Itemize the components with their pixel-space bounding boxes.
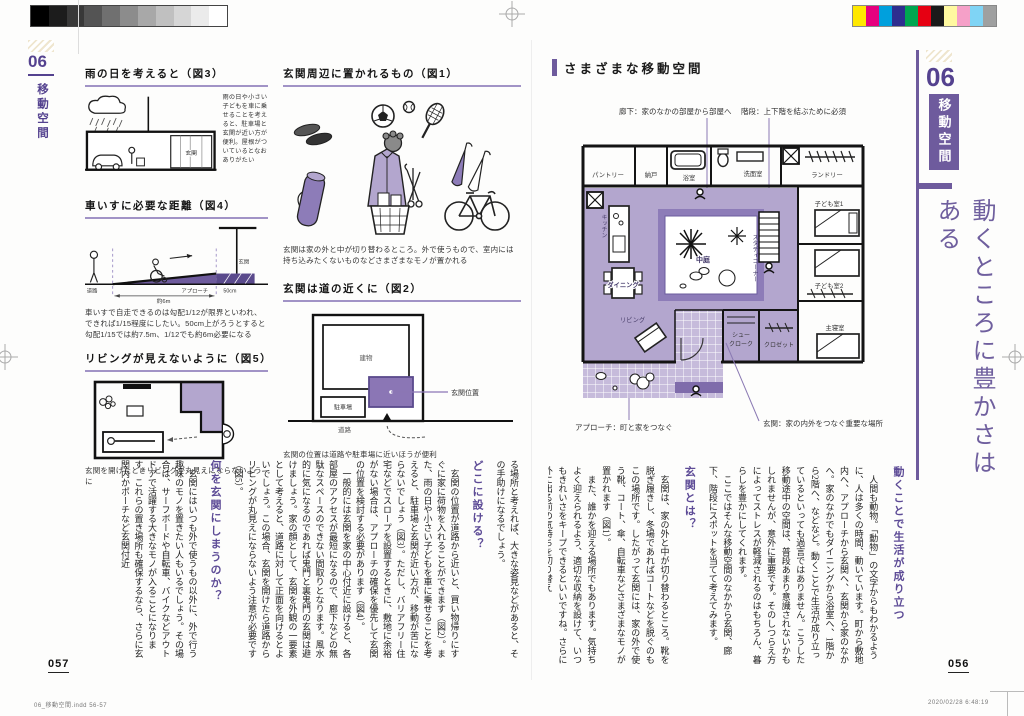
road-label: 道路 [87,286,98,294]
master-label: 主寝室 [826,323,845,332]
kids2-label: 子ども室2 [815,281,844,290]
calibration-swatch [138,6,156,26]
body-paragraph: 一般的には玄関を家の中心付近に設けると、各部屋のアクセスが最短になるので、廊下な… [231,460,353,662]
calibration-swatch [905,6,918,26]
left-column: 雨の日を考えると（図3） [85,66,268,497]
middle-column: 玄関周辺に置かれるもの（図1） [283,66,521,471]
pantry-label: パントリー [592,171,624,179]
figure-site-plan: 玄関は道の近くに（図2） 建物 玄関位置 駐車場 道路 玄関の位置は道路や駐車場… [283,281,521,461]
courtyard-label: 中庭 [696,255,711,264]
chapter-label: 移動空間 [935,98,954,166]
grayscale-calibration-bar [30,5,228,27]
racket-icon [415,101,447,142]
floor-plan: 廊下：家のなかの部屋から部屋へ 階段：上下階を結ぶために必須 中庭 スタディコー… [563,96,955,444]
chapter-tab-right: 06 移動空間 動くところに豊かさはある [916,50,980,480]
figure-caption: 雨の日や小さい子どもを車に乗せることを考えると、駐車場と玄関が近い方が便利。屋根… [223,94,268,166]
calibration-swatch [983,6,996,26]
body-paragraph: 玄関は、家の外と中が切り替わるところ。靴を脱ぎ履きし、冬場であればコートなどを脱… [599,466,672,668]
calibration-swatch [49,6,67,26]
shoecloak-label2: クローク [729,341,753,348]
figure-caption: 玄関は家の外と中が切り替わるところ。外で使うもので、室内には持ち込みたくないもの… [283,245,521,267]
chapter-headline: 動くところに豊かさはある [930,198,1000,498]
footer-slug-left: 06_移動空間.indd 56-57 [34,700,107,709]
closet-hangers-icon [807,289,853,298]
entrance-callout: 玄関：家の内外をつなぐ重要な場所 [763,418,883,428]
study-label: スタディコーナー [751,234,758,282]
calibration-swatch [853,6,866,26]
footer-slug-right: 2020/02/28 6:48:19 [928,700,989,706]
figure-title: 雨の日を考えると（図3） [85,66,268,87]
section-title: さまざまな移動空間 [564,58,704,77]
figure-title: 玄関周辺に置かれるもの（図1） [283,66,521,87]
calibration-swatch [102,6,120,26]
calibration-swatch [67,6,85,26]
figure-wheelchair: 車いすに必要な距離（図4） 玄関 [85,198,268,341]
calibration-swatch [892,6,905,26]
calibration-swatch [209,6,227,26]
approach-callout: アプローチ：町と家をつなぐ [575,422,673,432]
body-paragraph: 玄関にはいつも外で使うもの以外に、外で行う趣味のモノを置きたい人もいるでしょう。… [118,460,199,662]
storage-label: 納戸 [645,170,658,179]
laundry-hangers-icon [805,151,855,162]
calibration-swatch [957,6,970,26]
figure-title: 車いすに必要な距離（図4） [85,198,268,219]
body-paragraph: また、誰かを迎える場所でもあります。気持ちよく迎えられるよう、適切な収納を設けて… [548,466,599,668]
closet-label: クロゼット [764,341,794,349]
plant-icon [100,396,116,409]
divider-dash [916,183,952,189]
calibration-swatch [191,6,209,26]
site-plan-diagram: 建物 玄関位置 駐車場 道路 [283,309,521,447]
building-label: 建物 [360,353,374,362]
parking-label: 駐車場 [334,403,352,411]
tree-icon [676,229,706,259]
body-heading: 玄関とは？ [671,466,705,668]
figure-caption: 車いすで自走できるのは勾配1/12が限界といわれ、できれば1/15程度にしたい。… [85,308,268,341]
washroom-label: 洗面室 [744,169,763,178]
entrance-items-illustration [283,94,521,242]
right-page-body-text: 動くことで生活が成り立つ人間も動物。「動物」の文字からもわかるように、人は多くの… [548,466,914,668]
figure-title: リビングが見えないように（図5） [85,351,268,372]
hall-callout: 廊下：家のなかの部屋から部屋へ [619,106,732,116]
registration-mark [499,1,525,27]
body-paragraph: る場所と考えれば、大きな姿見などがあると、その手助けになるでしょう。 [493,460,520,662]
bath-label: 浴室 [683,173,696,182]
section-header: さまざまな移動空間 [552,58,704,77]
genkan-label: 玄関 [185,149,197,157]
calibration-swatch [174,6,192,26]
dining-label: ダイニング [607,280,639,289]
step-label: 50cm [223,288,237,294]
body-heading: どこに設ける？ [461,460,494,662]
page-number-right: 056 [948,658,969,673]
umbrella-icon [468,149,491,193]
header-accent-bar [552,59,557,76]
living-label: リビング [620,315,646,324]
calibration-swatch [879,6,892,26]
figure-entrance-items: 玄関周辺に置かれるもの（図1） [283,66,521,267]
rain-diagram: 玄関 [85,94,217,188]
laundry-label: ランドリー [811,171,842,179]
calibration-swatch [156,6,174,26]
genkan-label: 玄関 [239,258,250,266]
registration-mark [1002,344,1024,370]
chapter-label-box: 移動空間 [929,94,959,170]
calibration-swatch [866,6,879,26]
calibration-swatch [918,6,931,26]
crop-mark [78,0,79,54]
kids1-label: 子ども室1 [815,199,844,208]
calibration-swatch [120,6,138,26]
kitchen-label: キッチン [600,214,607,238]
left-page-body-text: る場所と考えれば、大きな姿見などがあると、その手助けになるでしょう。どこに設ける… [60,460,520,662]
crop-mark [1007,691,1008,716]
page-seam [531,40,532,680]
bicycle-icon [445,192,509,230]
stairs-callout: 階段：上下階を結ぶために必須 [741,106,846,116]
body-heading: 動くことで生活が成り立つ [880,466,914,668]
body-paragraph: ここではそんな移動空間のなかから玄関、廊下、階段にスポットを当てて考えてみます。 [705,466,734,668]
body-paragraph: 人間も動物。「動物」の文字からもわかるように、人は多くの時間、動いています。町か… [734,466,880,668]
umbrella-icon [451,141,472,187]
calibration-swatch [970,6,983,26]
shoecloak-label: シュー [732,333,750,339]
body-heading: 何を玄関にしまうのか？ [199,460,232,662]
approach-label: アプローチ [181,287,208,294]
calibration-swatch [84,6,102,26]
page-number-left: 057 [48,658,69,673]
chapter-number: 06 [28,52,54,76]
stroller-icon [405,164,422,207]
golf-bag-icon [293,170,327,228]
chapter-label: 移動空間 [34,83,50,141]
chapter-tab-left: 06 移動空間 [28,40,64,141]
figure-title: 玄関は道の近くに（図2） [283,281,521,302]
entrance-position-label: 玄関位置 [451,388,479,397]
calibration-swatch [944,6,957,26]
figure-caption: 玄関の位置は道路や駐車場に近いほうが便利 [283,450,521,461]
calibration-swatch [931,6,944,26]
hatch-decoration [926,50,952,62]
figure-rain: 雨の日を考えると（図3） [85,66,268,188]
road-label: 道路 [338,425,352,434]
registration-mark [0,344,18,370]
chapter-number: 06 [926,64,980,90]
hatch-decoration [28,40,54,52]
color-calibration-bar [852,5,997,27]
ramp-diagram: 玄関 約6m 道路 アプローチ 50cm [85,226,268,305]
living-plan-diagram [85,379,235,463]
body-paragraph: 玄関の位置が道路から近いと、買い物帰りにすぐに家に荷物を入れることができます（図… [353,460,461,662]
calibration-swatch [31,6,49,26]
dimension-label: 約6m [157,297,171,305]
